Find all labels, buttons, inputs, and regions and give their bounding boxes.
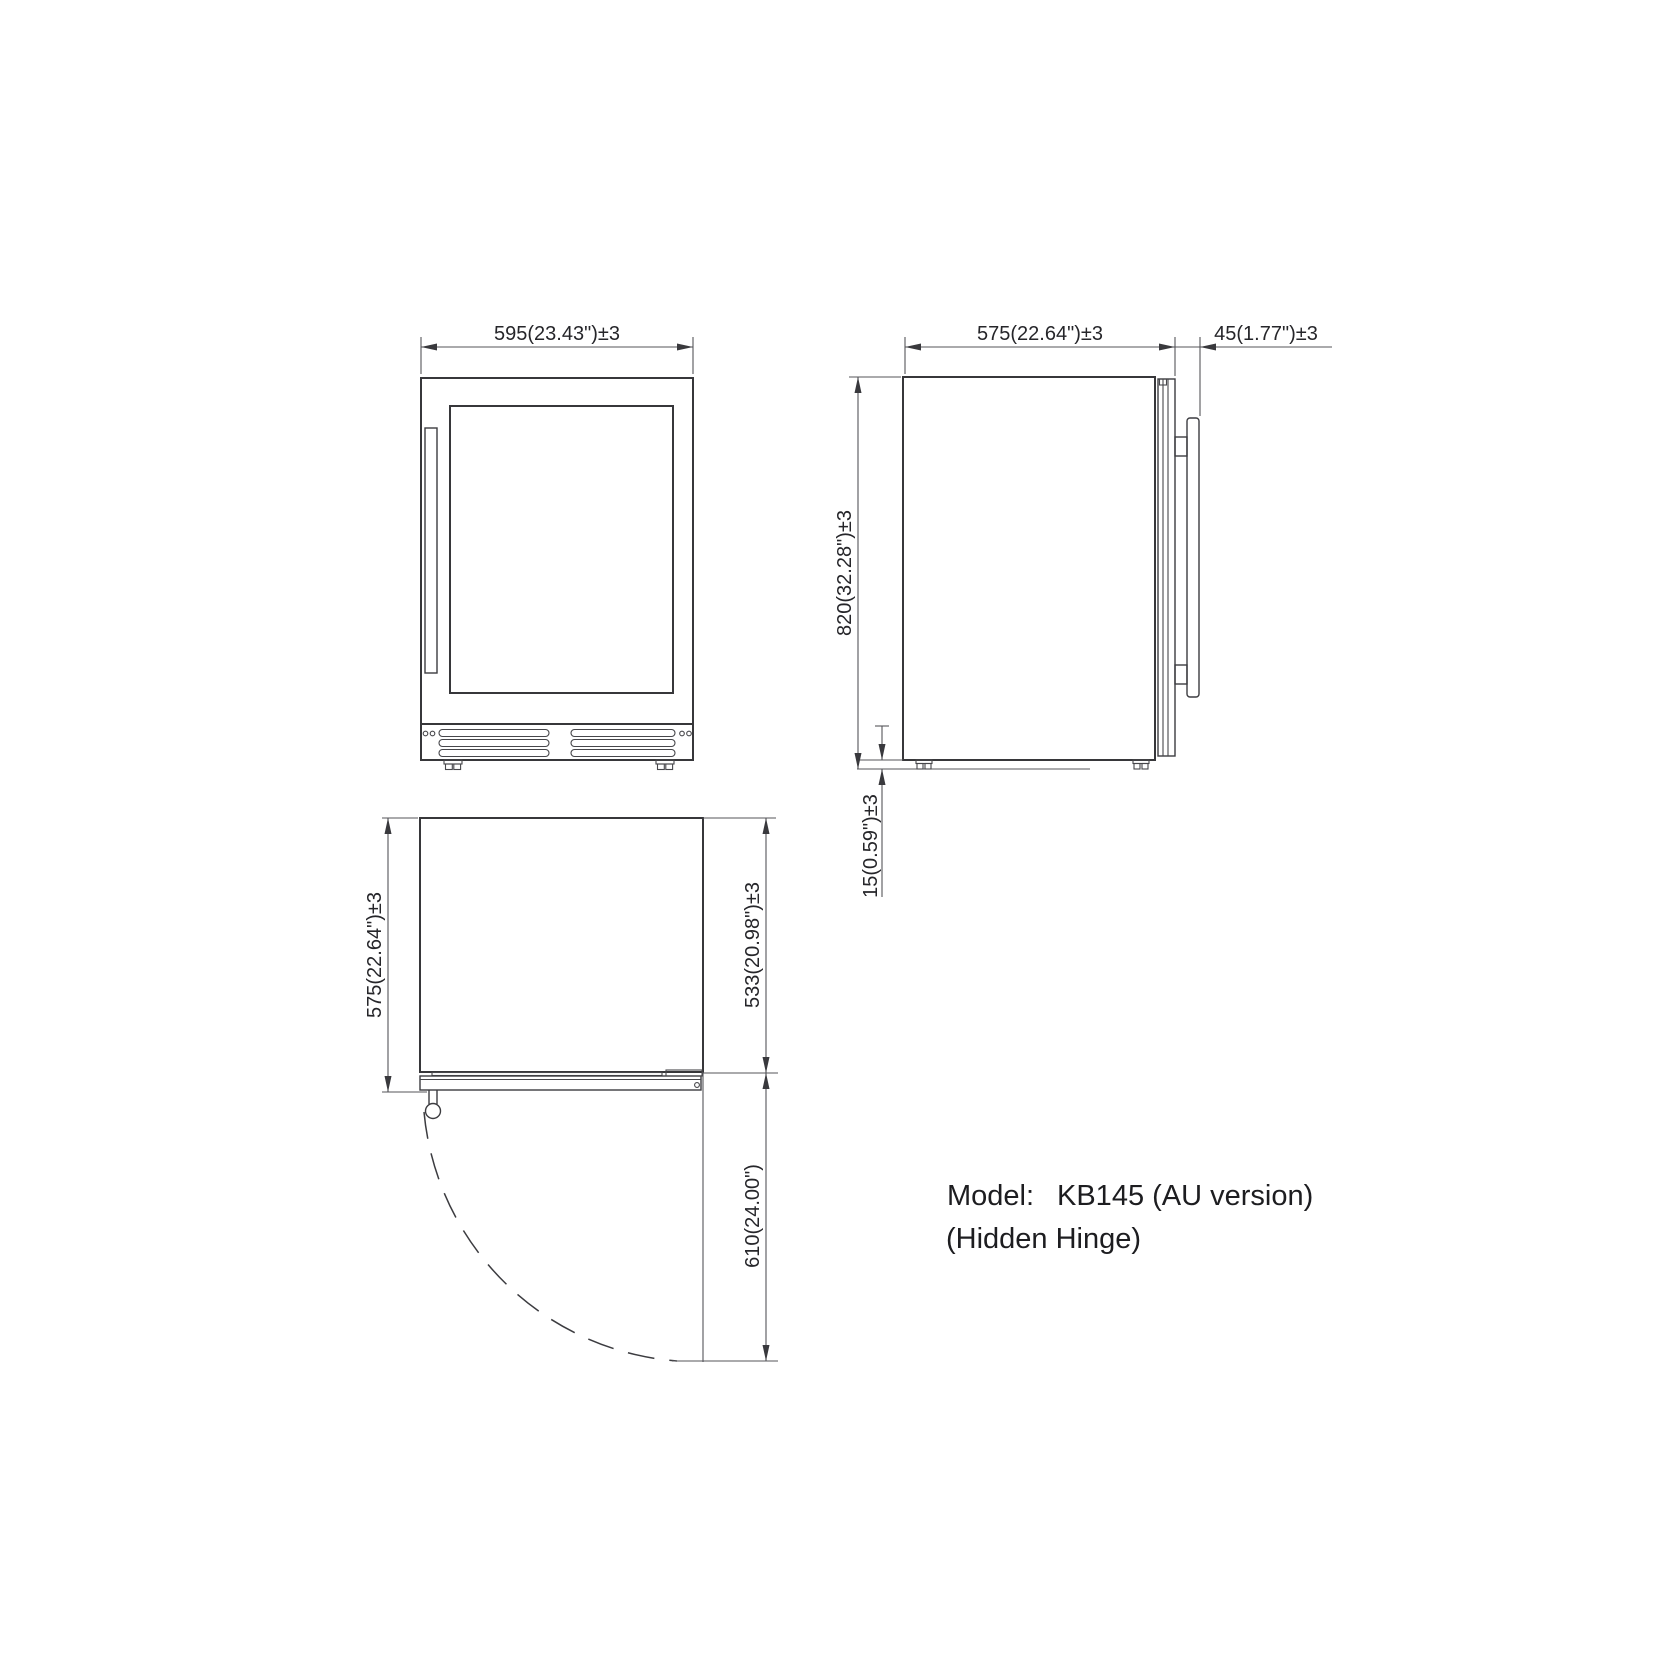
arrowhead-down-icon bbox=[385, 1076, 392, 1092]
arrowhead-up-icon bbox=[879, 769, 886, 785]
front-view: 595(23.43")±3 bbox=[421, 323, 693, 770]
side-handle-dim-label: 45(1.77")±3 bbox=[1214, 323, 1318, 345]
arrowhead-up-icon bbox=[763, 1073, 770, 1089]
vent-slat bbox=[571, 730, 675, 737]
side-cabinet-body bbox=[903, 377, 1155, 760]
arrowhead-down-icon bbox=[763, 1345, 770, 1361]
vent-slat bbox=[439, 740, 549, 747]
top-cabinet-depth-dim-label: 533(20.98")±3 bbox=[742, 882, 764, 1008]
front-glass-window bbox=[450, 406, 673, 693]
handle-standoff bbox=[1175, 665, 1187, 684]
side-leg-dimension: 15(0.59")±3 bbox=[860, 726, 889, 898]
model-annotation: Model: KB145 (AU version) (Hidden Hinge) bbox=[946, 1180, 1313, 1255]
arrowhead-right-icon bbox=[677, 344, 693, 351]
side-depth-dimension: 575(22.64")±3 45(1.77")±3 bbox=[905, 323, 1332, 416]
front-right-foot bbox=[656, 760, 674, 770]
front-width-dimension: 595(23.43")±3 bbox=[421, 323, 693, 374]
arrowhead-left-icon bbox=[905, 344, 921, 351]
top-depth-dim-label: 575(22.64")±3 bbox=[364, 892, 386, 1018]
side-door bbox=[1158, 379, 1175, 756]
front-left-foot bbox=[444, 760, 462, 770]
side-height-dimension: 820(32.28")±3 bbox=[834, 377, 901, 769]
dimension-drawing: 595(23.43")±3 bbox=[0, 0, 1676, 1676]
top-door-gasket bbox=[432, 1073, 662, 1076]
top-depth-dimension: 575(22.64")±3 bbox=[364, 818, 427, 1092]
arrowhead-up-icon bbox=[385, 818, 392, 834]
top-door-swing-dimension: 610(24.00") bbox=[672, 1073, 778, 1361]
arrowhead-down-icon bbox=[763, 1057, 770, 1073]
vent-screw-icon bbox=[423, 731, 428, 736]
side-view: 575(22.64")±3 45(1.77")±3 bbox=[834, 323, 1332, 898]
technical-drawing-canvas: 595(23.43")±3 bbox=[0, 0, 1676, 1676]
model-label: Model: bbox=[947, 1180, 1034, 1212]
vent-slat bbox=[571, 740, 675, 747]
side-depth-dim-label: 575(22.64")±3 bbox=[977, 323, 1103, 345]
side-leg-dim-label: 15(0.59")±3 bbox=[860, 794, 882, 898]
top-door bbox=[420, 1070, 702, 1090]
front-door-handle bbox=[425, 428, 437, 673]
side-door-handle bbox=[1175, 418, 1199, 697]
handle-bar-section bbox=[426, 1104, 441, 1119]
door-swing-arc bbox=[424, 1112, 677, 1361]
arrowhead-down-icon bbox=[855, 753, 862, 769]
top-view: 575(22.64")±3 533(20.98")±3 610(24.00") bbox=[364, 818, 778, 1362]
arrowhead-down-icon bbox=[879, 744, 886, 760]
hinge-screw-icon bbox=[695, 1083, 700, 1088]
top-cabinet-depth-dimension: 533(20.98")±3 bbox=[703, 818, 778, 1073]
side-back-foot bbox=[1133, 760, 1149, 769]
top-cabinet-body bbox=[420, 818, 703, 1072]
arrowhead-right-icon bbox=[1159, 344, 1175, 351]
vent-screw-icon bbox=[680, 731, 685, 736]
vent-screw-icon bbox=[687, 731, 692, 736]
vent-screw-icon bbox=[430, 731, 435, 736]
front-vent-panel bbox=[421, 724, 693, 757]
model-note: (Hidden Hinge) bbox=[946, 1223, 1141, 1255]
arrowhead-left-icon bbox=[421, 344, 437, 351]
front-cabinet-body bbox=[421, 378, 693, 760]
side-height-dim-label: 820(32.28")±3 bbox=[834, 510, 856, 636]
handle-standoff bbox=[1175, 437, 1187, 456]
vent-slat bbox=[439, 750, 549, 757]
front-width-dim-label: 595(23.43")±3 bbox=[494, 323, 620, 345]
model-value: KB145 (AU version) bbox=[1057, 1180, 1313, 1212]
arrowhead-up-icon bbox=[855, 377, 862, 393]
side-front-foot bbox=[916, 760, 932, 769]
top-door-swing-dim-label: 610(24.00") bbox=[742, 1164, 764, 1268]
vent-slat bbox=[439, 730, 549, 737]
vent-slat bbox=[571, 750, 675, 757]
arrowhead-up-icon bbox=[763, 818, 770, 834]
top-door-handle bbox=[426, 1090, 441, 1119]
top-door-bar bbox=[420, 1076, 701, 1090]
